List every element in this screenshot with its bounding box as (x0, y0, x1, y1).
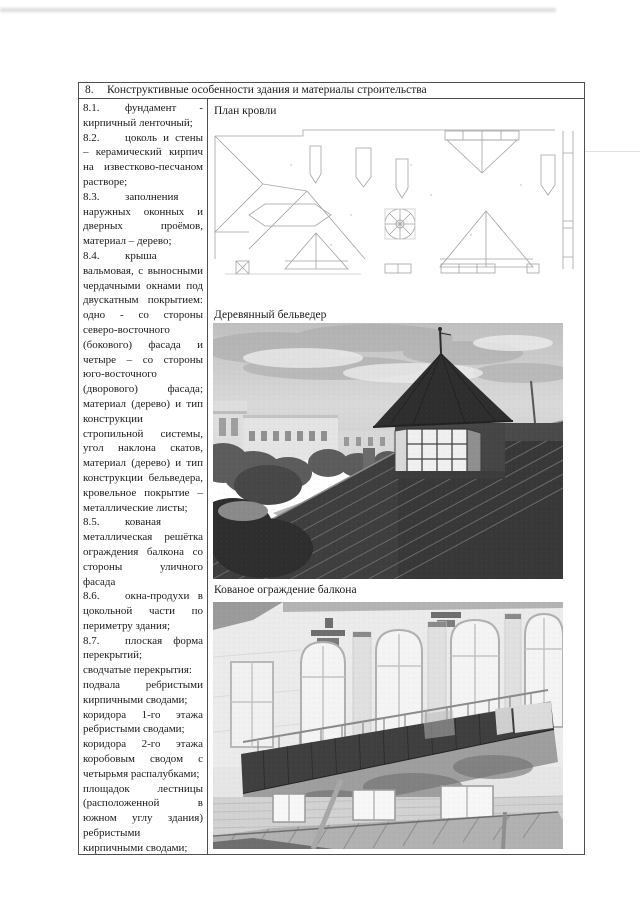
table-header-row: 8. Конструктивные особенности здания и м… (79, 83, 584, 99)
spec-item: 8.3.заполнения наружных оконных и дверны… (83, 190, 203, 249)
spec-item: 8.1.фундамент - кирпичный ленточный; (83, 101, 203, 131)
spec-item-number: 8.4. (83, 249, 125, 264)
table-body: 8.1.фундамент - кирпичный ленточный;8.2.… (79, 99, 584, 854)
spec-item-text: площадок лестницы (расположенной в южном… (83, 783, 203, 854)
spec-item: сводчатые перекрытия: (83, 663, 203, 678)
roof-plan-caption: План кровли (214, 105, 276, 118)
scan-artifact-line (584, 151, 640, 152)
spec-item-text: сводчатые перекрытия: (83, 664, 192, 676)
scan-artifact-streak (0, 8, 556, 12)
spec-item-number: 8.5. (83, 515, 125, 530)
spec-item-number: 8.3. (83, 190, 125, 205)
spec-item: коридора 2-го этажа коробовым сводом с ч… (83, 737, 203, 781)
spec-item: площадок лестницы (расположенной в южном… (83, 782, 203, 854)
spec-item: подвала ребристыми кирпичными сводами; (83, 678, 203, 708)
spec-item: 8.5.кованая металлическая решётка огражд… (83, 515, 203, 589)
spec-item-number: 8.1. (83, 101, 125, 116)
spec-item: коридора 1-го этажа ребристыми сводами; (83, 708, 203, 738)
roof-plan-drawing (211, 125, 581, 277)
balcony-caption: Кованое ограждение балкона (214, 584, 357, 597)
spec-item-text: крыша вальмовая, с выносными чердачными … (83, 250, 203, 514)
spec-table: 8. Конструктивные особенности здания и м… (78, 82, 585, 855)
spec-item-text: подвала ребристыми кирпичными сводами; (83, 679, 203, 706)
spec-item: 8.6.окна-продухи в цокольной части по пе… (83, 589, 203, 633)
belvedere-photo (213, 323, 563, 579)
spec-item: 8.4.крыша вальмовая, с выносными чердачн… (83, 249, 203, 515)
balcony-photo (213, 602, 563, 849)
spec-item: 8.7.плоская форма перекрытий; (83, 634, 203, 664)
spec-item-text: коридора 1-го этажа ребристыми сводами; (83, 709, 203, 736)
section-title: Конструктивные особенности здания и мате… (107, 84, 427, 97)
document-page: 8. Конструктивные особенности здания и м… (0, 0, 640, 905)
spec-item: 8.2.цоколь и стены – керамический кирпич… (83, 131, 203, 190)
spec-item-number: 8.7. (83, 634, 125, 649)
figures-column: План кровли (208, 99, 584, 854)
spec-item-number: 8.6. (83, 589, 125, 604)
belvedere-caption: Деревянный бельведер (214, 309, 326, 322)
spec-item-number: 8.2. (83, 131, 125, 146)
section-number: 8. (85, 84, 107, 97)
spec-item-text: коридора 2-го этажа коробовым сводом с ч… (83, 738, 203, 780)
spec-text-column: 8.1.фундамент - кирпичный ленточный;8.2.… (79, 99, 208, 854)
